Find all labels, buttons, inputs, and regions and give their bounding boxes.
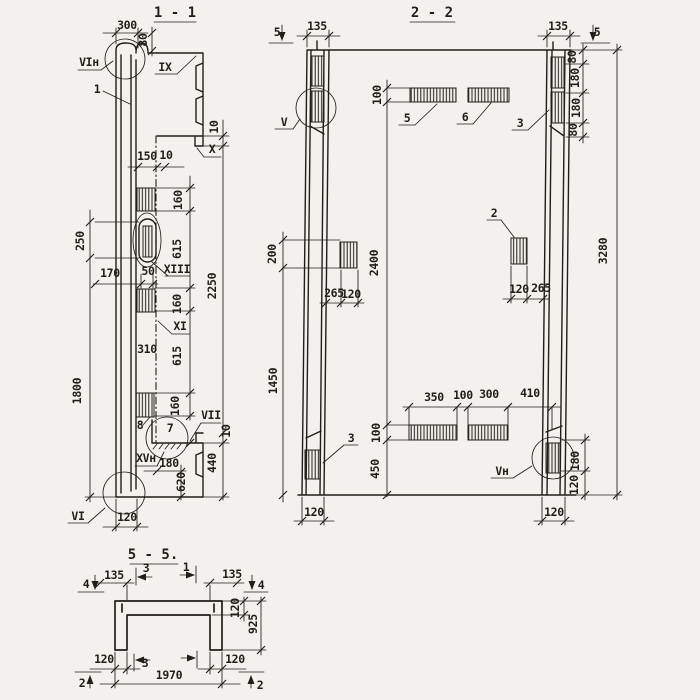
dim-265-right: 265: [531, 281, 551, 295]
dim-120-55-left: 120: [94, 652, 114, 666]
dim-120-right-mid: 120: [509, 282, 529, 296]
dim-250: 250: [73, 231, 87, 251]
dim-2250: 2250: [205, 272, 219, 299]
dim-135-right-col: 135: [548, 19, 568, 33]
detail-vi-circle: [103, 472, 145, 514]
dim-350: 350: [424, 390, 444, 404]
item-7: 7: [167, 421, 174, 435]
dim-925: 925: [246, 614, 260, 634]
item-8: 8: [137, 418, 144, 432]
detail-vi-n: VIн: [79, 55, 99, 69]
dim-3280: 3280: [596, 237, 610, 264]
item-6: 6: [462, 110, 469, 124]
dim-135-55-right: 135: [222, 567, 242, 581]
section-2-2-title: 2 - 2: [411, 5, 453, 21]
cut-5-right: 5: [594, 25, 601, 39]
hatch-area: [511, 238, 527, 264]
hatch-area: [311, 91, 324, 122]
detail-vii: VII: [201, 408, 221, 422]
dim-1450: 1450: [266, 367, 280, 394]
cut-5-left: 5: [274, 25, 281, 39]
dim-100-bottom: 100: [369, 423, 383, 443]
dim-135-left-col: 135: [307, 19, 327, 33]
dim-440: 440: [205, 453, 219, 473]
hatch-area: [409, 425, 457, 440]
detail-xiii: XIII: [164, 262, 191, 276]
labels-layer: 30080VIн1IX10X15010160250615XIII17050225…: [70, 18, 610, 692]
cut-3-bottom: 3: [142, 656, 149, 670]
hatch-area: [311, 56, 324, 86]
dim-150: 150: [137, 149, 157, 163]
dim-300-bottom: 300: [479, 387, 499, 401]
hatch-area: [546, 443, 560, 473]
dim-1970: 1970: [156, 668, 183, 682]
dim-80-r2: 80: [566, 123, 580, 137]
detail-v: V: [281, 115, 288, 129]
cut-2-right: 2: [257, 678, 264, 692]
dimension-ticks: [86, 29, 621, 688]
dim-180-br: 180: [568, 451, 582, 471]
dim-160-b: 160: [170, 294, 184, 314]
dim-615-b: 615: [170, 346, 184, 366]
dim-180-r2: 180: [569, 98, 583, 118]
dim-120-flange: 120: [228, 598, 242, 618]
dim-450: 450: [368, 459, 382, 479]
section-5-5-title: 5 - 5.: [128, 547, 179, 563]
item-1: 1: [94, 82, 101, 96]
dim-310: 310: [137, 342, 157, 356]
dim-120-55-right: 120: [225, 652, 245, 666]
dim-120-col-right: 120: [544, 505, 564, 519]
dim-120-col-left: 120: [304, 505, 324, 519]
hatch-area: [137, 188, 155, 211]
hatch-area: [136, 393, 154, 417]
cut-4-left: 4: [83, 577, 90, 591]
hatch-area: [410, 88, 456, 102]
hatch-area: [340, 242, 357, 268]
dim-100-top: 100: [370, 85, 384, 105]
detail-xv-n: XVн: [136, 451, 156, 465]
cut-1-top: 1: [183, 560, 190, 574]
dim-180-r1: 180: [568, 68, 582, 88]
dim-160-c: 160: [168, 396, 182, 416]
dim-180-step: 180: [159, 456, 179, 470]
item-2: 2: [491, 206, 498, 220]
dim-200: 200: [265, 244, 279, 264]
hatch-area: [468, 425, 508, 440]
dim-160-a: 160: [171, 190, 185, 210]
cut-2-left: 2: [79, 676, 86, 690]
hatch-area: [143, 226, 152, 257]
shelf-hatch-ticks: [153, 444, 181, 449]
dim-170: 170: [100, 266, 120, 280]
item-3-bottom: 3: [348, 431, 355, 445]
item-5: 5: [404, 111, 411, 125]
detail-xi: XI: [173, 319, 186, 333]
dim-80-r1: 80: [565, 50, 579, 64]
dim-1800: 1800: [70, 377, 84, 404]
cut-3-top: 3: [143, 561, 150, 575]
detail-x: X: [209, 142, 216, 156]
cut-4-right: 4: [258, 578, 265, 592]
drawing-canvas: 1 - 1 2 - 2 5 - 5. 30080VIн1IX10X1501016…: [0, 0, 700, 700]
hatch-area: [551, 57, 564, 88]
section-5-5-outline: [115, 601, 222, 650]
dim-620: 620: [174, 472, 188, 492]
dim-120-br: 120: [567, 475, 581, 495]
dim-50: 50: [141, 264, 155, 278]
item-3-top: 3: [517, 116, 524, 130]
dim-135-55-left: 135: [104, 568, 124, 582]
dim-100-mid: 100: [453, 388, 473, 402]
dim-10-upper: 10: [207, 120, 221, 134]
detail-vi: VI: [71, 509, 84, 523]
dim-615-a: 615: [170, 239, 184, 259]
dim-2400: 2400: [367, 249, 381, 276]
hatch-area: [551, 92, 564, 123]
technical-drawing: 1 - 1 2 - 2 5 - 5. 30080VIн1IX10X1501016…: [0, 0, 700, 700]
detail-ix: IX: [158, 60, 172, 74]
dim-120-left-mid: 120: [341, 287, 361, 301]
dim-10-wall: 10: [159, 148, 173, 162]
hatch-area: [305, 450, 320, 479]
dim-410: 410: [520, 386, 540, 400]
dim-10-lower: 10: [219, 424, 233, 438]
dim-80-top: 80: [136, 33, 150, 47]
hatch-area: [468, 88, 509, 102]
section-1-1-title: 1 - 1: [154, 5, 196, 21]
detail-v-n: Vн: [495, 464, 509, 478]
hatch-area: [137, 289, 155, 312]
dim-300-top: 300: [117, 18, 137, 32]
dim-120-wall-bottom: 120: [117, 510, 137, 524]
